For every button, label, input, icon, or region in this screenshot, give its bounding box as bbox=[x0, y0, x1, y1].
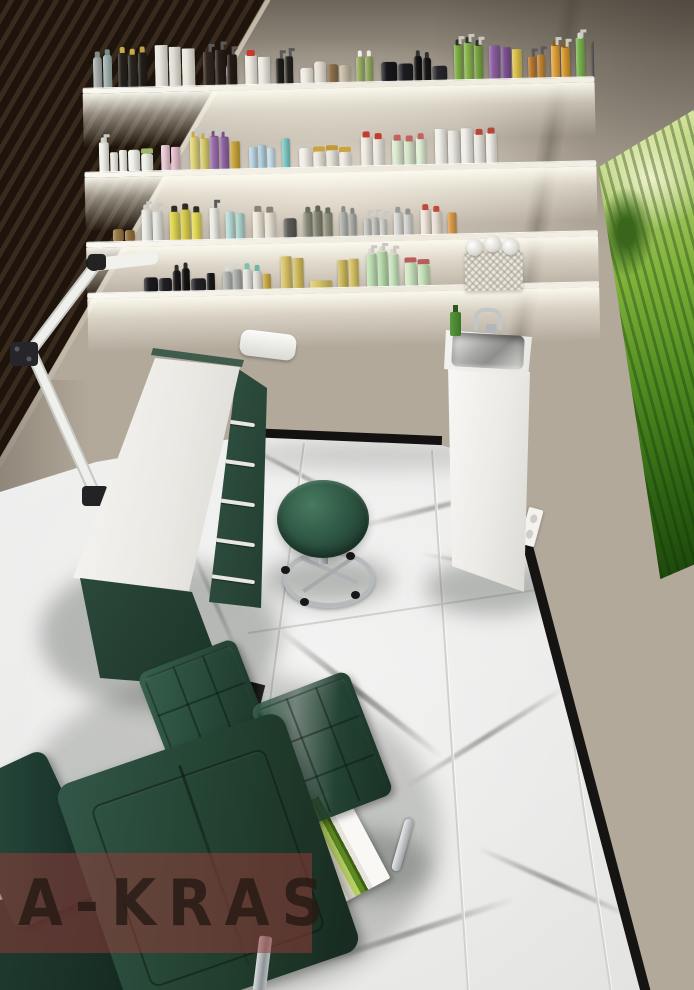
product-pump bbox=[190, 136, 200, 170]
product-jar bbox=[284, 218, 297, 238]
arm-wall-bracket bbox=[10, 342, 38, 366]
product-spray bbox=[227, 54, 238, 85]
product-tube bbox=[339, 211, 348, 237]
shelf-1-products bbox=[81, 14, 594, 89]
pump-nozzle-icon bbox=[382, 243, 385, 251]
pump-nozzle-icon bbox=[555, 37, 558, 45]
product-cap bbox=[94, 51, 100, 57]
product-tube bbox=[138, 51, 148, 87]
product-spray bbox=[537, 54, 546, 78]
product-pump bbox=[364, 218, 371, 236]
rolled-towel bbox=[484, 235, 501, 252]
pump-nozzle-icon bbox=[371, 245, 374, 253]
product-bottle bbox=[171, 147, 181, 171]
product-pump bbox=[464, 42, 474, 80]
product-jar bbox=[313, 151, 325, 167]
product-jar bbox=[398, 63, 413, 81]
product-bottle bbox=[447, 212, 456, 234]
stool-caster bbox=[346, 552, 355, 560]
product-cap bbox=[404, 257, 416, 262]
sink-steel-basin bbox=[451, 332, 525, 370]
product-bottle bbox=[313, 210, 323, 237]
product-jar bbox=[326, 150, 338, 167]
product-cap bbox=[315, 205, 321, 211]
watermark-band: A-KRAS bbox=[0, 853, 312, 953]
pump-nozzle-icon bbox=[146, 201, 149, 209]
product-cap bbox=[339, 147, 351, 152]
product-tube bbox=[423, 57, 432, 81]
product-cap bbox=[476, 129, 483, 135]
product-spray bbox=[215, 50, 227, 86]
stool-caster bbox=[281, 566, 290, 574]
product-bottle bbox=[119, 150, 127, 172]
product-box bbox=[155, 45, 169, 87]
product-bottle bbox=[252, 211, 264, 239]
pump-nozzle-icon bbox=[208, 44, 211, 52]
soap-dispenser bbox=[450, 312, 461, 336]
product-cap bbox=[325, 207, 331, 213]
product-box bbox=[404, 140, 416, 165]
product-cap bbox=[341, 206, 346, 212]
product-tube bbox=[253, 270, 262, 290]
product-cap bbox=[406, 135, 413, 141]
product-box bbox=[182, 48, 196, 86]
product-tube bbox=[356, 55, 365, 82]
product-box bbox=[489, 45, 501, 79]
product-pump bbox=[575, 37, 585, 77]
product-cap bbox=[234, 263, 240, 269]
product-box bbox=[280, 256, 292, 289]
pump-nozzle-icon bbox=[214, 128, 217, 136]
product-tube bbox=[365, 55, 374, 82]
product-cap bbox=[433, 206, 439, 212]
stool-caster bbox=[351, 591, 360, 599]
marble-vein bbox=[403, 685, 567, 790]
product-jar bbox=[418, 264, 430, 286]
towel-basket bbox=[464, 250, 523, 291]
product-bottle bbox=[263, 274, 271, 290]
product-spray bbox=[285, 56, 294, 84]
product-box bbox=[416, 138, 427, 165]
pump-nozzle-icon bbox=[232, 46, 235, 54]
product-pump bbox=[99, 142, 110, 172]
product-bottle bbox=[393, 212, 403, 236]
product-jar bbox=[381, 62, 397, 82]
product-cap bbox=[375, 133, 382, 139]
pump-nozzle-icon bbox=[280, 50, 283, 58]
product-box bbox=[230, 141, 241, 169]
product-box bbox=[348, 259, 359, 288]
product-bottle bbox=[303, 212, 313, 238]
product-jar bbox=[405, 262, 418, 286]
product-box bbox=[361, 136, 373, 166]
product-pump bbox=[380, 219, 387, 236]
product-spray bbox=[203, 52, 215, 86]
pump-nozzle-icon bbox=[478, 37, 481, 45]
product-spray bbox=[528, 57, 536, 79]
product-cap bbox=[141, 148, 153, 153]
product-cap bbox=[357, 50, 362, 56]
product-pump bbox=[210, 136, 220, 170]
product-bottle bbox=[249, 147, 257, 169]
product-bottle bbox=[110, 152, 118, 172]
stool-base-ring bbox=[283, 550, 375, 608]
product-cap bbox=[417, 259, 429, 264]
product-cap bbox=[405, 208, 411, 214]
product-jar bbox=[432, 66, 447, 81]
product-box bbox=[461, 128, 474, 164]
product-box bbox=[512, 49, 523, 79]
drawer-handle bbox=[207, 574, 255, 585]
product-cap bbox=[139, 46, 145, 52]
product-cap bbox=[488, 128, 495, 134]
product-bottle bbox=[323, 212, 333, 237]
pump-nozzle-icon bbox=[383, 211, 386, 219]
product-cap bbox=[363, 131, 370, 137]
stool-seat bbox=[277, 480, 369, 558]
pump-nozzle-icon bbox=[580, 29, 583, 37]
pump-nozzle-icon bbox=[204, 130, 207, 138]
product-box bbox=[245, 55, 258, 85]
product-bottle bbox=[161, 145, 171, 171]
product-pump bbox=[454, 44, 464, 80]
watermark-text: A-KRAS bbox=[18, 866, 335, 941]
shelf-2-products bbox=[83, 98, 596, 173]
product-jar bbox=[141, 153, 153, 171]
product-pump bbox=[377, 251, 388, 287]
product-box bbox=[486, 132, 498, 163]
product-cap bbox=[193, 206, 199, 212]
pump-nozzle-icon bbox=[194, 128, 197, 136]
faucet-base bbox=[486, 324, 496, 333]
product-pump bbox=[220, 137, 230, 170]
product-box bbox=[292, 258, 304, 289]
product-box bbox=[501, 47, 512, 79]
product-bottle bbox=[267, 147, 275, 168]
product-box bbox=[392, 140, 404, 166]
product-cap bbox=[182, 203, 188, 209]
product-cap bbox=[395, 207, 401, 213]
outlet-socket bbox=[525, 529, 534, 540]
treatment-room-render: A-KRAS bbox=[0, 0, 694, 990]
product-cap bbox=[266, 207, 273, 213]
product-cap bbox=[254, 206, 261, 212]
sink-pedestal bbox=[438, 352, 538, 600]
product-cap bbox=[424, 52, 429, 58]
product-tube bbox=[233, 268, 242, 290]
product-box bbox=[420, 209, 431, 235]
product-bottle bbox=[235, 213, 245, 239]
product-pump bbox=[551, 45, 561, 78]
product-tube bbox=[103, 54, 113, 88]
product-box bbox=[373, 138, 385, 166]
pump-nozzle-icon bbox=[532, 49, 535, 57]
product-box bbox=[431, 211, 442, 235]
product-spray bbox=[276, 58, 285, 84]
product-cap bbox=[171, 206, 177, 212]
product-tube bbox=[348, 213, 357, 237]
product-box bbox=[448, 130, 461, 164]
product-cap bbox=[366, 50, 371, 56]
product-tube bbox=[93, 56, 103, 88]
product-tube bbox=[128, 54, 138, 88]
arm-elbow-joint bbox=[88, 254, 106, 270]
product-cap bbox=[313, 146, 325, 151]
product-tube bbox=[414, 55, 423, 81]
outlet-socket bbox=[529, 514, 538, 525]
product-tube bbox=[118, 52, 128, 88]
product-jar bbox=[300, 68, 313, 84]
product-box bbox=[169, 47, 182, 87]
rolled-towel bbox=[502, 238, 519, 255]
pump-nozzle-icon bbox=[375, 209, 378, 217]
product-box bbox=[258, 57, 271, 85]
product-box bbox=[435, 129, 448, 165]
stool-caster bbox=[300, 598, 309, 606]
pump-nozzle-icon bbox=[541, 46, 544, 54]
product-pump bbox=[561, 47, 571, 78]
product-jar bbox=[339, 152, 351, 167]
product-cap bbox=[422, 204, 428, 210]
pump-nozzle-icon bbox=[393, 246, 396, 254]
product-jar bbox=[299, 148, 312, 168]
product-bottle bbox=[258, 145, 267, 169]
rolled-towel bbox=[466, 239, 483, 256]
product-cap bbox=[418, 133, 424, 139]
product-cap bbox=[119, 47, 125, 53]
product-cap bbox=[305, 207, 311, 213]
product-bottle bbox=[282, 138, 291, 168]
product-box bbox=[337, 260, 348, 288]
pump-nozzle-icon bbox=[224, 129, 227, 137]
product-bottle bbox=[403, 213, 412, 235]
product-pump bbox=[372, 217, 379, 236]
pump-nozzle-icon bbox=[220, 42, 223, 50]
product-pump bbox=[200, 138, 210, 170]
product-cap bbox=[244, 263, 250, 269]
product-cap bbox=[104, 49, 110, 55]
pump-nozzle-icon bbox=[214, 200, 217, 208]
product-jar bbox=[314, 61, 326, 83]
shelf-row-1 bbox=[81, 24, 594, 99]
soap-pump-cap bbox=[453, 305, 458, 312]
pump-nozzle-icon bbox=[157, 203, 160, 211]
pump-nozzle-icon bbox=[104, 134, 107, 142]
product-jar bbox=[128, 150, 140, 172]
product-cap bbox=[350, 208, 355, 214]
product-cap bbox=[326, 145, 338, 150]
product-pump bbox=[474, 45, 484, 80]
pump-nozzle-icon bbox=[565, 39, 568, 47]
product-cap bbox=[254, 265, 260, 271]
product-pump bbox=[388, 254, 399, 287]
pump-nozzle-icon bbox=[367, 210, 370, 218]
product-box bbox=[474, 134, 486, 164]
pump-nozzle-icon bbox=[289, 48, 292, 56]
product-jar bbox=[327, 64, 338, 83]
product-pump bbox=[366, 253, 377, 287]
product-cap bbox=[247, 50, 254, 56]
product-cap bbox=[415, 50, 420, 56]
product-cap bbox=[394, 135, 401, 141]
product-jar bbox=[339, 65, 350, 83]
product-bottle bbox=[264, 211, 276, 238]
product-cap bbox=[129, 49, 135, 55]
pump-nozzle-icon bbox=[458, 36, 461, 44]
product-tube bbox=[243, 268, 252, 290]
pump-nozzle-icon bbox=[468, 34, 471, 42]
